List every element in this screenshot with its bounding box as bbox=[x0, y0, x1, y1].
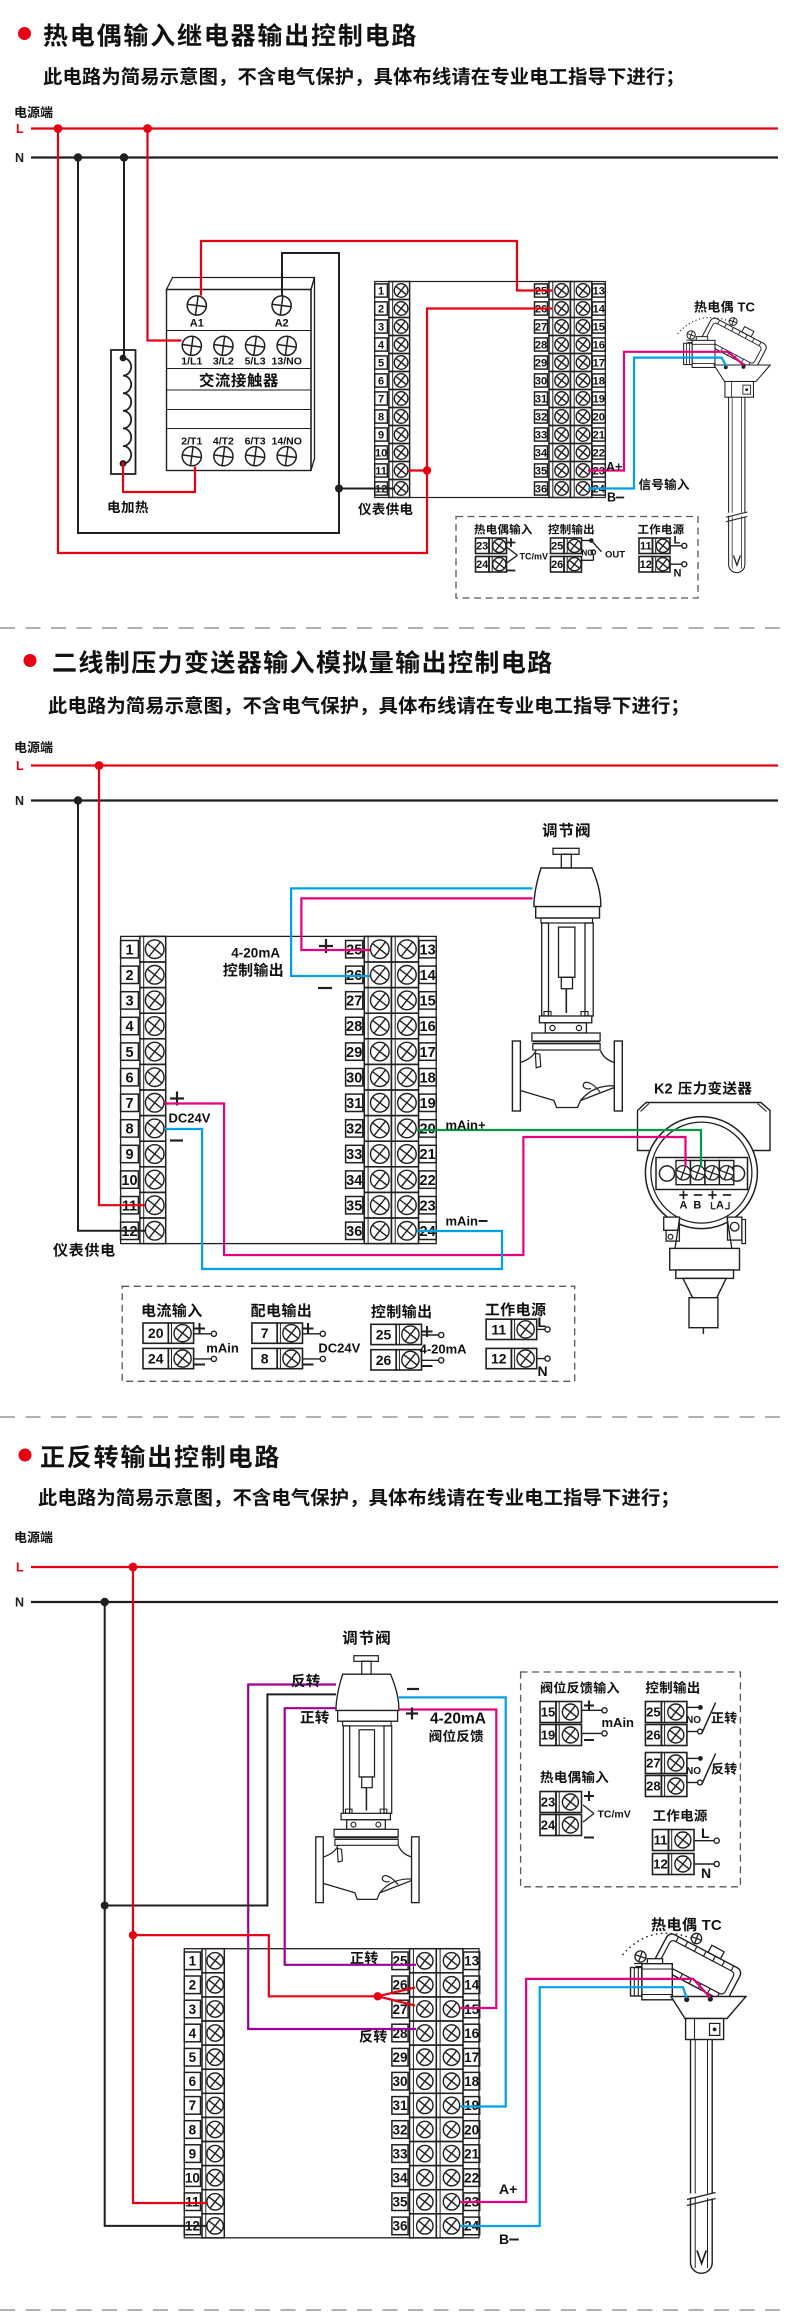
svg-text:10: 10 bbox=[375, 448, 387, 460]
svg-text:27: 27 bbox=[646, 1756, 660, 1771]
svg-text:22: 22 bbox=[464, 2171, 479, 2186]
svg-text:N: N bbox=[674, 568, 682, 580]
svg-text:2/T1: 2/T1 bbox=[181, 436, 202, 448]
svg-text:16: 16 bbox=[464, 2026, 480, 2041]
svg-text:19: 19 bbox=[420, 1096, 436, 1112]
svg-text:34: 34 bbox=[535, 448, 548, 460]
svg-text:8: 8 bbox=[261, 1351, 269, 1367]
svg-text:21: 21 bbox=[420, 1147, 436, 1163]
svg-text:12: 12 bbox=[640, 559, 652, 571]
svg-text:15: 15 bbox=[593, 322, 605, 334]
svg-text:15: 15 bbox=[541, 1705, 555, 1720]
svg-text:A2: A2 bbox=[275, 318, 289, 330]
svg-text:5: 5 bbox=[378, 358, 384, 370]
svg-text:6: 6 bbox=[125, 1070, 133, 1086]
svg-text:3: 3 bbox=[189, 2002, 197, 2017]
svg-text:24: 24 bbox=[476, 559, 489, 571]
svg-text:L: L bbox=[701, 1825, 710, 1841]
svg-text:34: 34 bbox=[392, 2171, 408, 2186]
svg-text:26: 26 bbox=[646, 1728, 660, 1743]
svg-text:25: 25 bbox=[392, 1954, 408, 1969]
svg-text:13: 13 bbox=[593, 286, 605, 298]
svg-text:4: 4 bbox=[189, 2026, 197, 2041]
svg-text:6/T3: 6/T3 bbox=[245, 436, 266, 448]
svg-text:32: 32 bbox=[346, 1122, 362, 1138]
svg-text:NO: NO bbox=[686, 1715, 701, 1726]
svg-text:K2: K2 bbox=[654, 1082, 677, 1098]
svg-text:33: 33 bbox=[346, 1147, 362, 1163]
svg-text:mAin: mAin bbox=[206, 1341, 239, 1356]
svg-text:12: 12 bbox=[653, 1857, 667, 1872]
svg-text:L: L bbox=[16, 759, 24, 773]
svg-text:8: 8 bbox=[125, 1122, 133, 1138]
svg-text:25: 25 bbox=[646, 1705, 660, 1720]
svg-text:36: 36 bbox=[535, 484, 547, 496]
svg-text:17: 17 bbox=[593, 358, 605, 370]
svg-text:13: 13 bbox=[420, 942, 436, 958]
svg-text:NO: NO bbox=[582, 549, 594, 558]
svg-text:28: 28 bbox=[646, 1779, 660, 1794]
svg-text:22: 22 bbox=[593, 448, 605, 460]
svg-text:8: 8 bbox=[378, 412, 384, 424]
svg-text:33: 33 bbox=[535, 430, 547, 442]
svg-text:23: 23 bbox=[541, 1795, 555, 1810]
svg-text:35: 35 bbox=[392, 2195, 408, 2210]
svg-text:24: 24 bbox=[148, 1351, 164, 1367]
svg-text:4: 4 bbox=[125, 1019, 133, 1035]
svg-text:35: 35 bbox=[346, 1198, 362, 1214]
svg-text:32: 32 bbox=[535, 412, 547, 424]
svg-text:14: 14 bbox=[464, 1978, 480, 1993]
svg-text:2: 2 bbox=[125, 968, 133, 984]
svg-text:11: 11 bbox=[654, 1833, 668, 1848]
svg-text:1: 1 bbox=[189, 1954, 197, 1969]
svg-text:9: 9 bbox=[378, 430, 384, 442]
svg-text:18: 18 bbox=[464, 2074, 480, 2089]
svg-text:TC/mV: TC/mV bbox=[598, 1809, 631, 1821]
svg-text:9: 9 bbox=[125, 1147, 133, 1163]
svg-text:A: A bbox=[680, 1200, 688, 1212]
svg-text:L: L bbox=[674, 535, 681, 547]
svg-text:4-20mA: 4-20mA bbox=[430, 1711, 486, 1728]
svg-text:16: 16 bbox=[420, 1019, 436, 1035]
svg-text:DC24V: DC24V bbox=[318, 1341, 360, 1356]
svg-text:26: 26 bbox=[376, 1352, 392, 1368]
svg-text:4-20mA: 4-20mA bbox=[420, 1342, 468, 1357]
svg-text:7: 7 bbox=[125, 1096, 133, 1112]
svg-text:5/L3: 5/L3 bbox=[245, 356, 266, 368]
svg-text:L: L bbox=[16, 1561, 24, 1575]
svg-text:TC: TC bbox=[698, 1917, 722, 1934]
svg-text:24: 24 bbox=[541, 1818, 556, 1833]
svg-text:14/NO: 14/NO bbox=[272, 436, 302, 448]
svg-text:34: 34 bbox=[346, 1173, 362, 1189]
svg-text:1/L1: 1/L1 bbox=[181, 356, 202, 368]
svg-text:25: 25 bbox=[376, 1327, 392, 1343]
svg-text:35: 35 bbox=[535, 466, 547, 478]
svg-text:29: 29 bbox=[346, 1045, 362, 1061]
svg-text:23: 23 bbox=[476, 541, 488, 553]
svg-text:B: B bbox=[607, 491, 616, 505]
svg-text:23: 23 bbox=[420, 1198, 436, 1214]
svg-text:5: 5 bbox=[189, 2050, 197, 2065]
svg-text:15: 15 bbox=[464, 2002, 480, 2017]
svg-text:B: B bbox=[499, 2231, 509, 2247]
svg-text:DC24V: DC24V bbox=[169, 1111, 211, 1126]
svg-text:L: L bbox=[16, 122, 24, 136]
svg-text:29: 29 bbox=[535, 358, 547, 370]
svg-text:12: 12 bbox=[491, 1351, 507, 1367]
svg-text:mAin: mAin bbox=[602, 1715, 635, 1730]
svg-text:N: N bbox=[15, 151, 24, 165]
svg-text:A+: A+ bbox=[606, 460, 622, 474]
svg-text:N: N bbox=[15, 794, 24, 808]
svg-text:11: 11 bbox=[491, 1321, 506, 1337]
svg-text:20: 20 bbox=[593, 412, 605, 424]
svg-text:13: 13 bbox=[464, 1954, 480, 1969]
svg-text:4: 4 bbox=[378, 340, 385, 352]
svg-text:3: 3 bbox=[378, 322, 384, 334]
svg-text:L: L bbox=[538, 1314, 547, 1330]
svg-text:17: 17 bbox=[420, 1045, 436, 1061]
svg-text:33: 33 bbox=[392, 2146, 408, 2161]
svg-text:N: N bbox=[15, 1596, 24, 1610]
svg-text:TC/mV: TC/mV bbox=[520, 552, 549, 562]
svg-text:19: 19 bbox=[541, 1728, 555, 1743]
svg-text:31: 31 bbox=[535, 394, 547, 406]
svg-text:11: 11 bbox=[375, 466, 387, 478]
svg-text:mAin+: mAin+ bbox=[446, 1118, 487, 1133]
svg-text:29: 29 bbox=[392, 2050, 407, 2065]
svg-text:18: 18 bbox=[593, 376, 605, 388]
svg-text:mAin: mAin bbox=[446, 1214, 479, 1229]
svg-text:2: 2 bbox=[189, 1978, 197, 1993]
svg-text:25: 25 bbox=[551, 541, 563, 553]
svg-text:10: 10 bbox=[185, 2171, 200, 2186]
svg-text:28: 28 bbox=[535, 340, 547, 352]
svg-text:A+: A+ bbox=[499, 2181, 517, 2197]
svg-text:4-20mA: 4-20mA bbox=[231, 946, 280, 961]
svg-text:26: 26 bbox=[551, 559, 563, 571]
svg-text:27: 27 bbox=[535, 322, 547, 334]
svg-text:18: 18 bbox=[420, 1070, 436, 1086]
svg-text:6: 6 bbox=[378, 376, 384, 388]
svg-text:13/NO: 13/NO bbox=[272, 356, 302, 368]
svg-text:TC: TC bbox=[734, 300, 756, 315]
svg-text:10: 10 bbox=[121, 1173, 137, 1189]
svg-text:21: 21 bbox=[593, 430, 605, 442]
svg-text:27: 27 bbox=[346, 994, 362, 1010]
svg-text:17: 17 bbox=[464, 2050, 479, 2065]
svg-text:31: 31 bbox=[346, 1096, 362, 1112]
svg-text:N: N bbox=[701, 1865, 711, 1881]
svg-text:3: 3 bbox=[125, 994, 133, 1010]
svg-text:21: 21 bbox=[464, 2146, 480, 2161]
svg-text:7: 7 bbox=[378, 394, 384, 406]
svg-text:6: 6 bbox=[189, 2074, 197, 2089]
svg-text:28: 28 bbox=[346, 1019, 362, 1035]
svg-text:30: 30 bbox=[535, 376, 547, 388]
svg-text:A1: A1 bbox=[190, 318, 204, 330]
svg-text:NO: NO bbox=[686, 1766, 701, 1777]
svg-text:31: 31 bbox=[392, 2098, 408, 2113]
svg-text:9: 9 bbox=[189, 2146, 197, 2161]
svg-text:36: 36 bbox=[346, 1224, 362, 1240]
svg-text:1: 1 bbox=[125, 942, 133, 958]
svg-text:11: 11 bbox=[640, 541, 652, 553]
svg-text:2: 2 bbox=[378, 304, 384, 316]
svg-text:32: 32 bbox=[392, 2122, 407, 2137]
svg-text:30: 30 bbox=[346, 1070, 362, 1086]
svg-text:15: 15 bbox=[420, 994, 436, 1010]
svg-text:7: 7 bbox=[189, 2098, 197, 2113]
svg-text:14: 14 bbox=[593, 304, 606, 316]
svg-text:5: 5 bbox=[125, 1045, 133, 1061]
svg-text:22: 22 bbox=[420, 1173, 436, 1189]
svg-text:20: 20 bbox=[148, 1325, 164, 1341]
svg-text:11: 11 bbox=[122, 1198, 137, 1214]
svg-text:36: 36 bbox=[392, 2219, 408, 2234]
svg-text:3/L2: 3/L2 bbox=[213, 356, 234, 368]
svg-text:1: 1 bbox=[378, 286, 384, 298]
svg-text:14: 14 bbox=[420, 968, 436, 984]
svg-text:20: 20 bbox=[464, 2122, 479, 2137]
svg-text:19: 19 bbox=[593, 394, 605, 406]
svg-text:N: N bbox=[538, 1363, 548, 1379]
svg-text:A: A bbox=[716, 1200, 724, 1212]
svg-text:8: 8 bbox=[189, 2122, 197, 2137]
svg-text:7: 7 bbox=[261, 1325, 269, 1341]
svg-text:12: 12 bbox=[121, 1224, 137, 1240]
svg-text:16: 16 bbox=[593, 340, 605, 352]
svg-text:30: 30 bbox=[392, 2074, 407, 2089]
svg-text:B: B bbox=[693, 1200, 701, 1212]
svg-text:4/T2: 4/T2 bbox=[213, 436, 234, 448]
svg-text:OUT: OUT bbox=[605, 550, 625, 561]
